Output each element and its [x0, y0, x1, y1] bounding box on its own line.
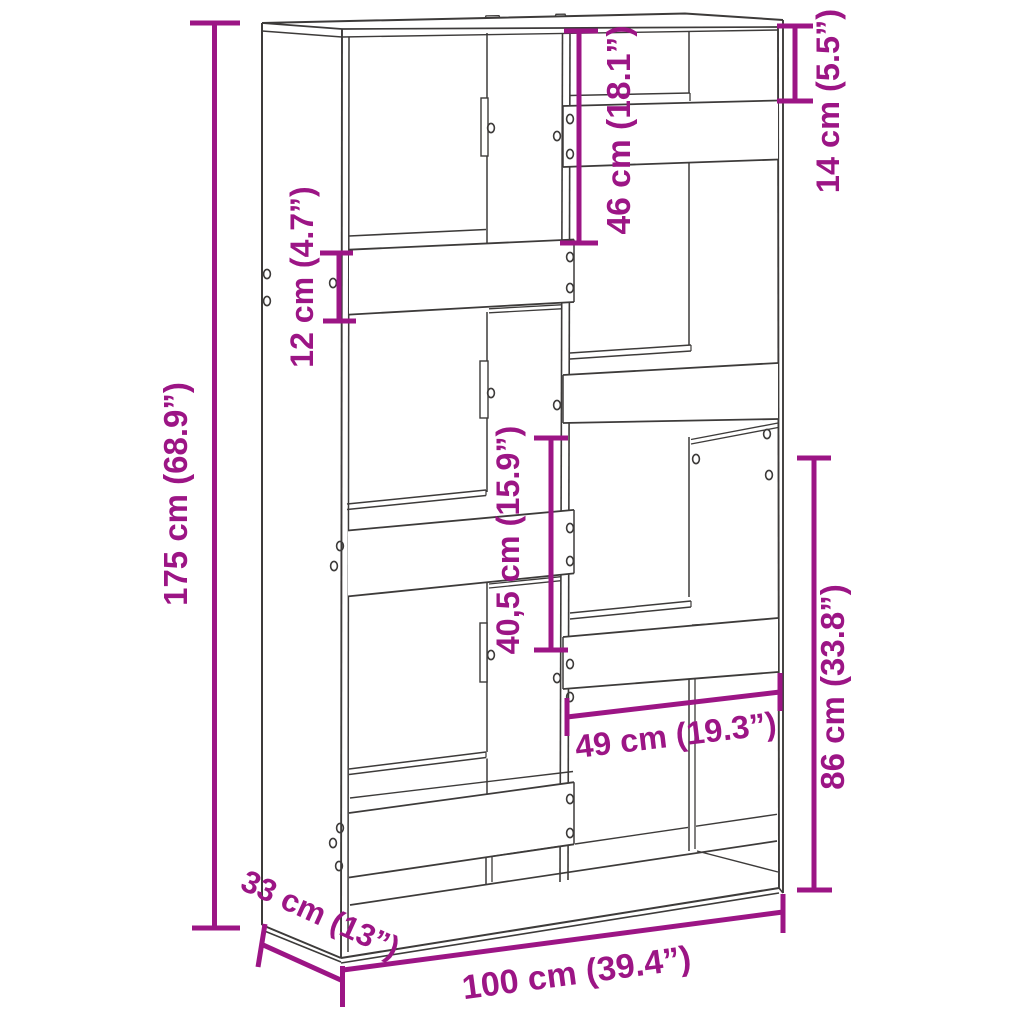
svg-text:86 cm (33.8”): 86 cm (33.8”) [814, 584, 851, 789]
svg-text:14 cm (5.5”): 14 cm (5.5”) [810, 9, 846, 193]
svg-text:12 cm (4.7”): 12 cm (4.7”) [284, 186, 320, 367]
svg-text:46 cm (18.1”): 46 cm (18.1”) [601, 25, 638, 234]
svg-text:175 cm (68.9”): 175 cm (68.9”) [157, 382, 194, 606]
svg-text:40,5 cm (15.9”): 40,5 cm (15.9”) [490, 426, 526, 655]
